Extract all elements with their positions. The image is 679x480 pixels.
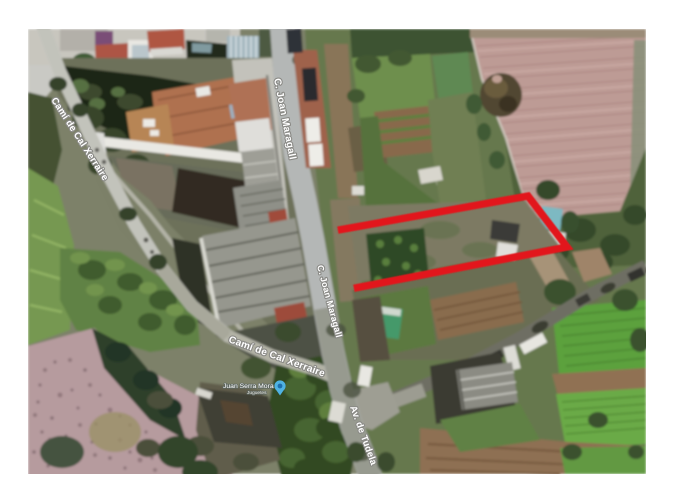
svg-text:Juan Serra Mora: Juan Serra Mora: [223, 383, 274, 390]
svg-text:Juguetes: Juguetes: [247, 390, 267, 396]
